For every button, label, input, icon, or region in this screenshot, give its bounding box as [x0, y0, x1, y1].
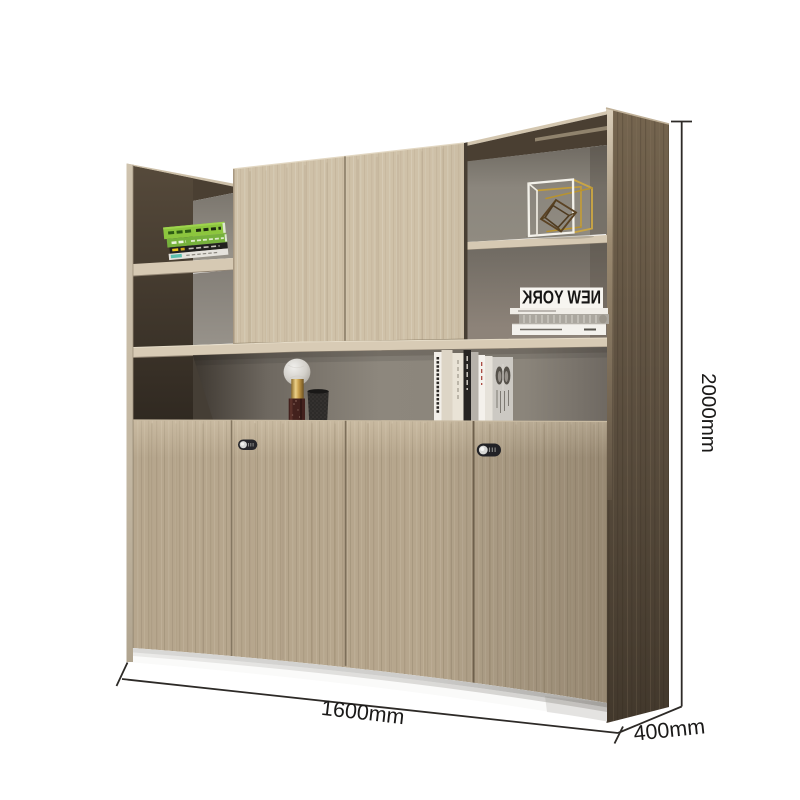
svg-text:NEW YORK: NEW YORK: [522, 287, 601, 308]
svg-text:2000mm: 2000mm: [697, 373, 720, 453]
